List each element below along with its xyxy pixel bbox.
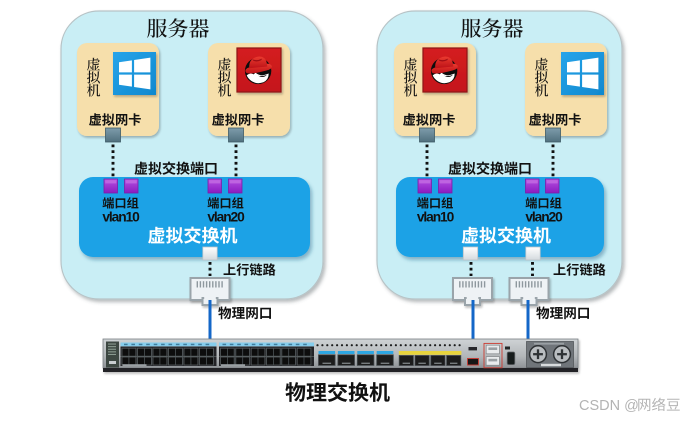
svg-text:vlan20: vlan20 (525, 210, 563, 225)
svg-text:CSDN @: CSDN @ (579, 398, 639, 414)
svg-text:vlan20: vlan20 (207, 210, 245, 225)
svg-text:vlan10: vlan10 (417, 210, 455, 225)
svg-text:vlan10: vlan10 (102, 210, 140, 225)
